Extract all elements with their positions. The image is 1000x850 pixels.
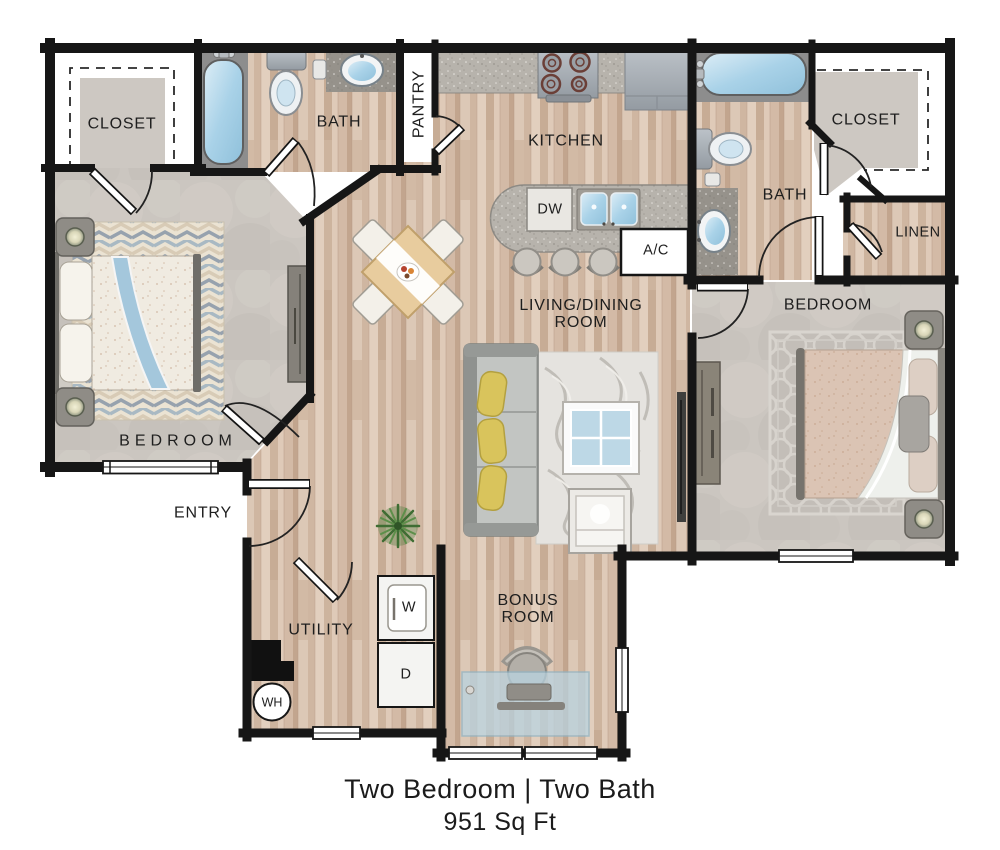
- nightstand: [905, 500, 943, 538]
- room-label-bedroom-right: BEDROOM: [784, 297, 872, 314]
- dresser-right: [694, 362, 720, 484]
- window-bedroom-right: [779, 550, 853, 562]
- room-label-bath-left: BATH: [317, 114, 362, 131]
- bed-right-headboard: [938, 348, 946, 500]
- room-label-closet-left: CLOSET: [88, 116, 157, 133]
- sofa: [464, 344, 538, 536]
- room-label-kitchen: KITCHEN: [528, 133, 604, 150]
- room-label-entry: ENTRY: [174, 505, 232, 522]
- room-label-bonus-room: BONUS ROOM: [498, 592, 559, 626]
- bath-left-accessory: [313, 60, 326, 79]
- room-label-closet-right: CLOSET: [832, 112, 901, 129]
- bed-right-caddy: [899, 396, 929, 452]
- nightstand: [905, 311, 943, 349]
- caption-title: Two Bedroom | Two Bath: [0, 774, 1000, 805]
- caption-sqft: 951 Sq Ft: [0, 808, 1000, 837]
- dining-set: [351, 218, 464, 325]
- room-label-bath-right: BATH: [763, 187, 808, 204]
- stove-handle: [546, 95, 591, 102]
- window-bonus-center: [525, 747, 597, 759]
- tub-right-faucet: [697, 61, 704, 68]
- window-bonus-right: [616, 648, 628, 712]
- bathtub-left: [204, 60, 243, 164]
- sofa-pillows: [476, 370, 508, 511]
- bathtub-right: [702, 53, 806, 95]
- label-water-heater: WH: [262, 695, 283, 712]
- keyboard: [507, 684, 551, 700]
- label-dryer: D: [401, 667, 412, 684]
- bed-right-footboard: [796, 348, 805, 500]
- plate: [397, 263, 419, 281]
- bed-left-pillow: [60, 324, 92, 382]
- room-label-living-dining: LIVING/DINING ROOM: [519, 297, 642, 331]
- mouse: [466, 686, 474, 694]
- window-utility: [313, 727, 360, 739]
- bed-left-pillow: [60, 262, 92, 320]
- island-stools: [512, 249, 618, 276]
- room-label-bedroom-left: BEDROOM: [119, 433, 237, 450]
- side-table: [569, 489, 631, 553]
- label-washer: W: [402, 600, 416, 617]
- window-bedroom-left: [103, 461, 218, 474]
- label-dishwasher: DW: [537, 202, 562, 219]
- nightstand: [56, 388, 94, 426]
- bath-right-accessory: [705, 173, 720, 186]
- closet-right-shelf: [814, 72, 918, 196]
- room-label-utility: UTILITY: [288, 622, 353, 639]
- floorplan-page: CLOSET BATH PANTRY KITCHEN LIVING/DINING…: [0, 0, 1000, 850]
- nightstand: [56, 218, 94, 256]
- monitor-bar: [497, 702, 565, 710]
- coffee-table: [563, 402, 639, 474]
- room-label-linen: LINEN: [895, 225, 940, 242]
- bed-left-footboard: [193, 254, 201, 392]
- wall-tv: [677, 392, 686, 522]
- window-bonus-left: [449, 747, 522, 759]
- label-air-conditioner: A/C: [643, 243, 669, 260]
- potted-plant: [377, 505, 419, 547]
- room-label-pantry: PANTRY: [411, 70, 428, 138]
- caption: Two Bedroom | Two Bath 951 Sq Ft: [0, 774, 1000, 837]
